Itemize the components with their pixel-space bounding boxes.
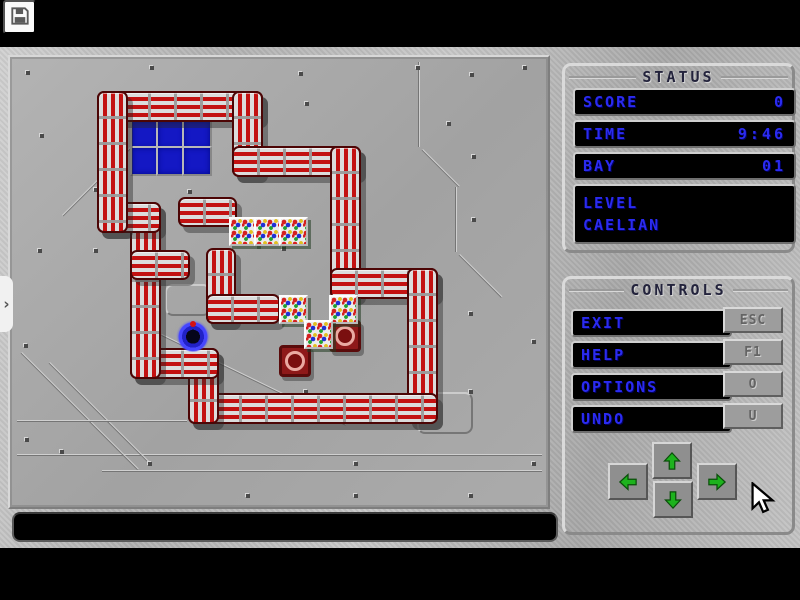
undo-button[interactable]: UNDO [571, 405, 732, 433]
undo-label: UNDO [581, 410, 625, 428]
esc-key-label: ESC [740, 313, 766, 328]
help-button[interactable]: HELP [571, 341, 732, 369]
floor-seam [422, 149, 459, 186]
screw [416, 66, 420, 70]
app-window: STATUS SCORE 0 TIME 9:46 BAY 01 LEVEL CA… [0, 0, 800, 600]
screw [532, 340, 536, 344]
u-key-label: U [749, 409, 758, 424]
floor-seam [17, 420, 187, 421]
sidebar-expand-tab[interactable]: › [0, 276, 13, 332]
screw [299, 72, 303, 76]
options-button[interactable]: OPTIONS [571, 373, 732, 401]
floor-seam [17, 454, 542, 455]
arrow-right-button[interactable] [697, 463, 737, 500]
options-key-button[interactable]: O [723, 371, 783, 397]
screw [148, 462, 152, 466]
game-screen-bezel: STATUS SCORE 0 TIME 9:46 BAY 01 LEVEL CA… [0, 47, 800, 548]
crate-target [279, 345, 311, 377]
time-label: TIME [583, 125, 627, 143]
f1-key-label: F1 [744, 345, 762, 360]
screw [282, 247, 286, 251]
screw [532, 462, 536, 466]
score-value: 0 [774, 93, 786, 111]
game-board [8, 55, 550, 509]
bay-display: BAY 01 [573, 152, 796, 180]
score-display: SCORE 0 [573, 88, 796, 116]
arrow-up-icon [662, 451, 682, 471]
title-rule-left [569, 76, 636, 78]
arrow-down-icon [663, 490, 683, 510]
screw [25, 438, 29, 442]
options-label: OPTIONS [581, 378, 658, 396]
arrow-down-button[interactable] [653, 481, 693, 518]
screw [469, 312, 473, 316]
controls-panel-title: CONTROLS [569, 281, 788, 299]
title-rule-right [721, 76, 788, 78]
o-key-label: O [749, 377, 758, 392]
pipe-wall [188, 393, 438, 424]
status-panel-title: STATUS [569, 68, 788, 86]
status-title-text: STATUS [642, 68, 714, 86]
floor-seam [459, 254, 502, 297]
time-value: 9:46 [738, 125, 786, 143]
screw [470, 73, 474, 77]
screw [246, 494, 250, 498]
bay-value: 01 [762, 157, 786, 175]
status-panel: STATUS SCORE 0 TIME 9:46 BAY 01 LEVEL CA… [562, 63, 795, 253]
level-name: CAELIAN [583, 216, 660, 234]
screw [26, 71, 30, 75]
screw [472, 218, 476, 222]
score-label: SCORE [583, 93, 638, 111]
arrow-up-button[interactable] [652, 442, 692, 479]
time-display: TIME 9:46 [573, 120, 796, 148]
crate [304, 320, 333, 349]
title-rule-right [733, 289, 788, 291]
floor-seam [456, 187, 457, 252]
screw [38, 249, 42, 253]
title-rule-left [569, 289, 624, 291]
storage-bay-cell [182, 146, 212, 176]
screw [354, 462, 358, 466]
bottom-letterbox [0, 548, 800, 600]
floor-panel [165, 284, 211, 316]
screw [472, 155, 476, 159]
arrow-right-icon [707, 472, 727, 492]
screw [60, 450, 64, 454]
screw [469, 494, 473, 498]
level-label: LEVEL [583, 194, 638, 212]
pipe-wall [97, 91, 128, 233]
bay-label: BAY [583, 157, 616, 175]
undo-key-button[interactable]: U [723, 403, 783, 429]
floor-seam [21, 352, 138, 469]
top-toolbar [0, 0, 800, 47]
screw [188, 190, 192, 194]
controls-title-text: CONTROLS [630, 281, 726, 299]
chevron-right-icon: › [3, 295, 9, 313]
crate-target [329, 320, 361, 352]
screw [523, 66, 527, 70]
screw [40, 134, 44, 138]
screw [305, 102, 309, 106]
help-label: HELP [581, 346, 625, 364]
controls-panel: CONTROLS EXIT ESC HELP F1 OPTIONS O [562, 276, 795, 535]
exit-key-button[interactable]: ESC [723, 307, 783, 333]
player-character [176, 318, 210, 352]
crate [329, 295, 358, 324]
floppy-disk-icon [9, 5, 31, 30]
screw [447, 122, 451, 126]
save-button[interactable] [3, 0, 36, 34]
screw [94, 249, 98, 253]
screw [24, 344, 28, 348]
level-display: LEVEL CAELIAN [573, 184, 796, 244]
message-bar [12, 512, 558, 542]
pipe-wall [206, 294, 280, 324]
arrow-left-icon [618, 472, 638, 492]
screw [354, 494, 358, 498]
crate [279, 217, 308, 246]
floor-seam [419, 62, 420, 147]
screw [150, 66, 154, 70]
exit-button[interactable]: EXIT [571, 309, 732, 337]
screw [469, 390, 473, 394]
arrow-left-button[interactable] [608, 463, 648, 500]
floor-seam [102, 470, 542, 471]
exit-label: EXIT [581, 314, 625, 332]
pipe-wall [130, 250, 190, 280]
help-key-button[interactable]: F1 [723, 339, 783, 365]
